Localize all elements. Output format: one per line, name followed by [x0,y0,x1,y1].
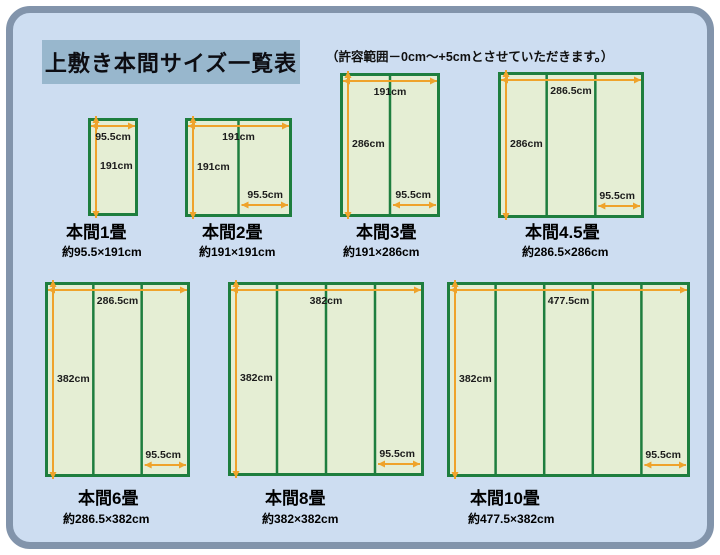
panel-width-label: 95.5cm [185,188,283,202]
panel-width-label: 95.5cm [498,189,635,203]
diagram-size-caption: 約286.5×382cm [63,512,149,526]
width-dimension-label: 286.5cm [45,294,190,308]
mat-figure-svg [177,110,300,225]
width-dimension-label: 477.5cm [447,294,690,308]
height-dimension-label: 286cm [352,137,385,151]
width-dimension-label: 382cm [228,294,424,308]
height-dimension-label: 382cm [240,371,273,385]
diagram-size-caption: 約382×382cm [262,512,338,526]
panel-width-label: 95.5cm [228,447,415,461]
diagram-title: 本間6畳 [78,489,138,508]
tolerance-note: （許容範囲－0cm～+5cmとさせていただきます。） [326,46,613,65]
panel-width-label: 95.5cm [340,188,431,202]
diagram-title: 本間8畳 [265,489,325,508]
diagram-title: 本間1畳 [66,223,126,242]
width-dimension-label: 191cm [185,130,292,144]
diagram-title: 本間10畳 [470,489,540,508]
height-dimension-label: 191cm [100,159,133,173]
diagram-title: 本間3畳 [356,223,416,242]
page-title: 上敷き本間サイズ一覧表 [45,46,297,78]
height-dimension-label: 382cm [57,372,90,386]
height-dimension-label: 286cm [510,137,543,151]
diagram-size-caption: 約191×191cm [199,245,275,259]
width-dimension-label: 286.5cm [498,84,644,98]
height-dimension-label: 382cm [459,372,492,386]
width-dimension-label: 191cm [340,85,440,99]
title-box: 上敷き本間サイズ一覧表 [42,40,300,84]
panel-width-label: 95.5cm [447,448,681,462]
diagram-title: 本間4.5畳 [525,223,600,242]
diagram-size-caption: 約477.5×382cm [468,512,554,526]
height-dimension-label: 191cm [197,160,230,174]
diagram-size-caption: 約95.5×191cm [62,245,142,259]
diagram-title: 本間2畳 [202,223,262,242]
panel-width-label: 95.5cm [45,448,181,462]
diagram-size-caption: 約191×286cm [343,245,419,259]
width-dimension-label: 95.5cm [88,130,138,144]
diagram-size-caption: 約286.5×286cm [522,245,608,259]
